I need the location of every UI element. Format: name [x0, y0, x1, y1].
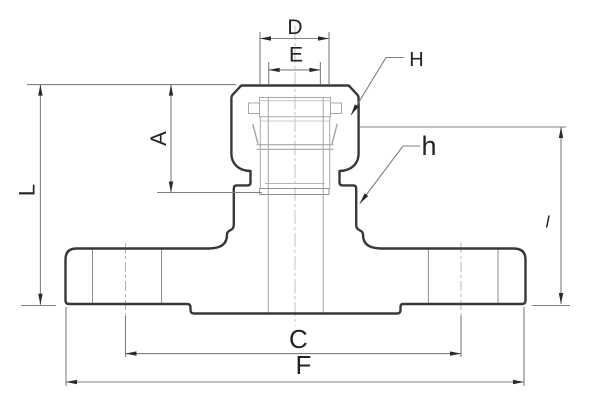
svg-text:E: E — [289, 44, 303, 67]
svg-text:H: H — [409, 49, 423, 71]
svg-text:L: L — [15, 184, 40, 196]
svg-text:F: F — [295, 350, 311, 380]
svg-text:D: D — [287, 16, 302, 39]
svg-text:A: A — [146, 131, 171, 146]
svg-text:h: h — [421, 131, 436, 161]
